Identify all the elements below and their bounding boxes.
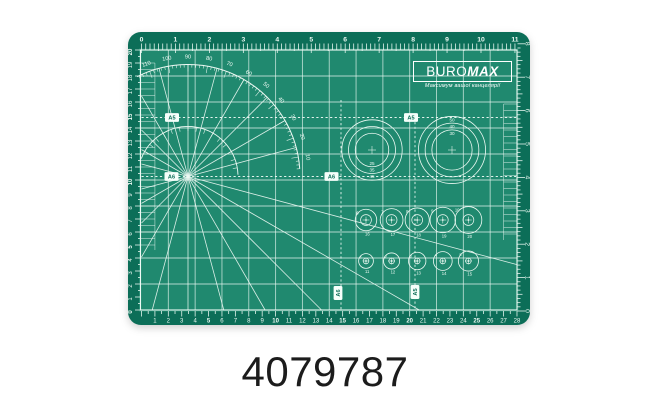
ruler-number: 10 — [272, 319, 279, 325]
gauge-ring-label: 50 — [449, 117, 455, 122]
gauge-diameter-label: 18 — [416, 233, 421, 238]
cutting-mat: 102030405060708090100110 253545504030616… — [0, 0, 650, 345]
logo-brand-regular: BURO — [426, 65, 467, 79]
gauge-ring-label: 35 — [369, 167, 375, 172]
buromax-logo: BUROMAX — [413, 61, 512, 82]
ruler-number: 6 — [343, 37, 347, 44]
ruler-number: 14 — [128, 126, 134, 133]
ruler-number: 23 — [447, 319, 454, 325]
ruler-number: 24 — [460, 319, 467, 325]
size-badge-label: A6 — [168, 175, 175, 181]
size-badge: A5 — [165, 113, 179, 122]
ruler-number: 11 — [128, 165, 134, 172]
size-badge: A5 — [411, 285, 420, 299]
protractor-label: 10 — [304, 154, 311, 161]
ruler-number: 18 — [128, 74, 134, 81]
ruler-number: 12 — [128, 152, 134, 159]
ruler-number: 17 — [366, 319, 373, 325]
ruler-number: 28 — [514, 319, 521, 325]
size-badge-label: A6 — [336, 289, 342, 296]
ruler-number: 20 — [406, 319, 413, 325]
ruler-number: 21 — [420, 319, 427, 325]
ruler-number: 22 — [433, 319, 440, 325]
ruler-number: 19 — [128, 61, 134, 68]
gauge-diameter-label: 13 — [416, 270, 421, 275]
ruler-number: 20 — [128, 48, 134, 55]
gauge-diameter-label: 17 — [391, 232, 396, 237]
ruler-number: 4 — [275, 37, 279, 44]
ruler-number: 16 — [128, 100, 134, 107]
size-badge-label: A5 — [168, 116, 175, 122]
gauge-diameter-label: 20 — [467, 234, 472, 239]
protractor-label: 80 — [205, 56, 212, 63]
gauge-number: 10 — [455, 208, 460, 213]
ruler-number: 8 — [411, 37, 415, 44]
ruler-number: 13 — [312, 319, 319, 325]
ruler-number: 2 — [208, 37, 212, 44]
ruler-number: 18 — [380, 319, 387, 325]
ruler-number: 13 — [128, 139, 134, 146]
ruler-number: 15 — [339, 319, 346, 325]
ruler-number: 7 — [377, 37, 381, 44]
gauge-diameter-label: 12 — [391, 270, 396, 275]
ruler-number: 1 — [174, 37, 178, 44]
gauge-ring-label: 30 — [449, 131, 455, 136]
protractor-label: 90 — [185, 54, 191, 60]
gauge-diameter-label: 15 — [467, 272, 472, 277]
size-badge: A6 — [165, 172, 179, 181]
gauge-ring-label: 40 — [449, 124, 455, 129]
gauge-diameter-label: 16 — [365, 231, 370, 236]
gauge-ring-label: 25 — [369, 161, 375, 166]
ruler-number: 11 — [286, 319, 293, 325]
gauge-diameter-label: 11 — [365, 269, 370, 274]
ruler-number: 9 — [445, 37, 449, 44]
ruler-number: 11 — [511, 37, 518, 44]
size-badge-label: A6 — [328, 175, 335, 181]
ruler-number: 10 — [128, 178, 134, 185]
ruler-number: 19 — [393, 319, 400, 325]
ruler-number: 12 — [299, 319, 306, 325]
logo-brand-bold: MAX — [467, 65, 499, 79]
size-badge: A6 — [334, 286, 343, 300]
ruler-number: 14 — [326, 319, 333, 325]
gauge-diameter-label: 14 — [442, 271, 447, 276]
gauge-diameter-label: 19 — [442, 233, 447, 238]
ruler-number: 15 — [128, 113, 134, 120]
ruler-number: 25 — [473, 319, 480, 325]
size-badge: A5 — [404, 113, 418, 122]
ruler-number: 17 — [128, 87, 134, 94]
ruler-number: 10 — [477, 37, 485, 44]
size-badge: A6 — [325, 172, 339, 181]
ruler-number: 27 — [500, 319, 507, 325]
ruler-number: 3 — [241, 37, 245, 44]
ruler-number: 5 — [309, 37, 313, 44]
product-photo: 102030405060708090100110 253545504030616… — [0, 0, 650, 400]
gauge-ring-label: 45 — [369, 174, 375, 179]
product-code: 4079787 — [0, 348, 650, 396]
ruler-number: 0 — [140, 37, 144, 44]
size-badge-label: A5 — [413, 288, 419, 295]
ruler-number: 16 — [353, 319, 360, 325]
size-badge-label: A5 — [407, 116, 414, 122]
logo-slogan: Максимум вашої канцелярії — [413, 84, 512, 90]
ruler-number: 26 — [487, 319, 494, 325]
